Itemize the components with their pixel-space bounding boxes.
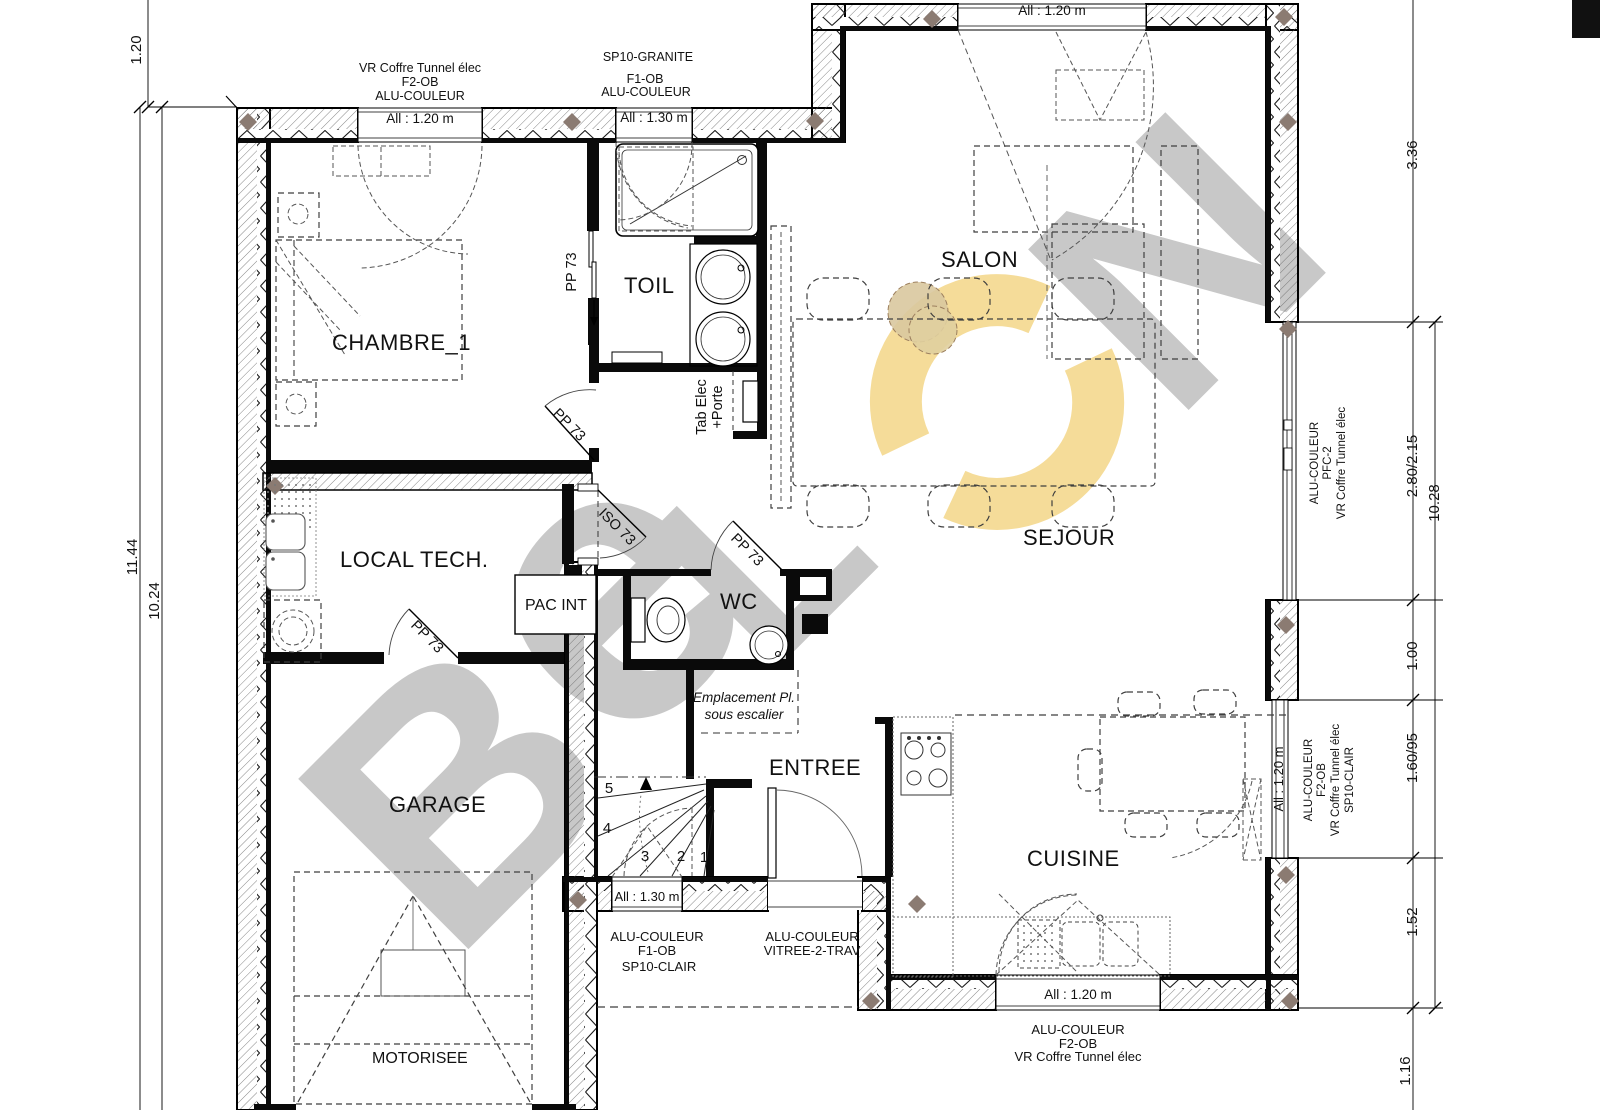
svg-text:SP10-CLAIR: SP10-CLAIR xyxy=(1344,747,1356,813)
svg-text:SP10-GRANITE: SP10-GRANITE xyxy=(603,50,693,64)
svg-text:All : 1.20 m: All : 1.20 m xyxy=(386,111,454,126)
svg-text:2.80/2.15: 2.80/2.15 xyxy=(1404,435,1421,498)
svg-text:LOCAL TECH.: LOCAL TECH. xyxy=(340,547,489,572)
svg-text:SALON: SALON xyxy=(941,247,1018,272)
svg-text:All : 1.30 m: All : 1.30 m xyxy=(614,889,679,904)
svg-text:1.20: 1.20 xyxy=(128,35,145,64)
svg-text:WC: WC xyxy=(720,589,758,614)
svg-text:VR Coffre Tunnel élec: VR Coffre Tunnel élec xyxy=(359,61,481,75)
svg-text:F2-OB: F2-OB xyxy=(1316,763,1328,797)
svg-text:11.44: 11.44 xyxy=(124,539,141,575)
svg-text:5: 5 xyxy=(605,780,613,797)
svg-text:All : 1.30 m: All : 1.30 m xyxy=(620,110,688,125)
svg-text:F1-OB: F1-OB xyxy=(638,943,676,958)
svg-text:1.00: 1.00 xyxy=(1404,641,1421,670)
svg-text:2: 2 xyxy=(677,848,685,865)
svg-text:VR Coffre Tunnel élec: VR Coffre Tunnel élec xyxy=(1015,1049,1142,1064)
svg-text:PFC-2: PFC-2 xyxy=(1322,446,1334,479)
svg-text:ENTREE: ENTREE xyxy=(769,755,861,780)
svg-text:1: 1 xyxy=(700,849,708,866)
svg-text:CUISINE: CUISINE xyxy=(1027,846,1120,871)
svg-text:ALU-COULEUR: ALU-COULEUR xyxy=(601,85,691,99)
svg-text:ALU-COULEUR: ALU-COULEUR xyxy=(375,89,465,103)
svg-text:PAC INT: PAC INT xyxy=(525,597,587,614)
svg-text:F1-OB: F1-OB xyxy=(627,72,664,86)
svg-text:VITREE-2-TRAV: VITREE-2-TRAV xyxy=(764,943,861,958)
svg-text:ALU-COULEUR: ALU-COULEUR xyxy=(610,929,703,944)
svg-text:F2-OB: F2-OB xyxy=(402,75,439,89)
svg-text:VR Coffre Tunnel élec: VR Coffre Tunnel élec xyxy=(1336,407,1348,520)
svg-text:1.16: 1.16 xyxy=(1397,1056,1414,1085)
svg-text:sous escalier: sous escalier xyxy=(705,707,784,722)
svg-text:10.24: 10.24 xyxy=(146,582,163,620)
svg-text:All : 1.20 m: All : 1.20 m xyxy=(1271,746,1286,811)
svg-text:PP 73: PP 73 xyxy=(564,252,580,291)
svg-text:3.36: 3.36 xyxy=(1404,140,1421,169)
svg-text:TOIL: TOIL xyxy=(624,273,675,298)
svg-text:MOTORISEE: MOTORISEE xyxy=(372,1050,468,1067)
svg-text:1.52: 1.52 xyxy=(1404,907,1421,936)
svg-text:All : 1.20 m: All : 1.20 m xyxy=(1044,987,1112,1002)
svg-text:Emplacement Pl.: Emplacement Pl. xyxy=(693,690,795,705)
svg-text:1.60/95: 1.60/95 xyxy=(1404,733,1421,783)
svg-text:VR Coffre Tunnel élec: VR Coffre Tunnel élec xyxy=(1330,724,1342,837)
svg-text:SP10-CLAIR: SP10-CLAIR xyxy=(622,959,696,974)
svg-text:Tab Elec: Tab Elec xyxy=(694,379,710,435)
svg-text:ALU-COULEUR: ALU-COULEUR xyxy=(1031,1022,1124,1037)
svg-text:4: 4 xyxy=(603,820,611,837)
svg-text:3: 3 xyxy=(641,848,649,865)
svg-text:ALU-COULEUR: ALU-COULEUR xyxy=(1309,422,1321,504)
svg-text:ALU-COULEUR: ALU-COULEUR xyxy=(765,929,858,944)
svg-text:SEJOUR: SEJOUR xyxy=(1023,525,1115,550)
svg-text:GARAGE: GARAGE xyxy=(389,792,486,817)
svg-text:+Porte: +Porte xyxy=(710,385,726,428)
svg-text:ALU-COULEUR: ALU-COULEUR xyxy=(1303,739,1315,821)
svg-text:10.28: 10.28 xyxy=(1426,484,1443,522)
svg-text:CHAMBRE_1: CHAMBRE_1 xyxy=(332,330,471,355)
svg-text:All : 1.20 m: All : 1.20 m xyxy=(1018,3,1086,18)
